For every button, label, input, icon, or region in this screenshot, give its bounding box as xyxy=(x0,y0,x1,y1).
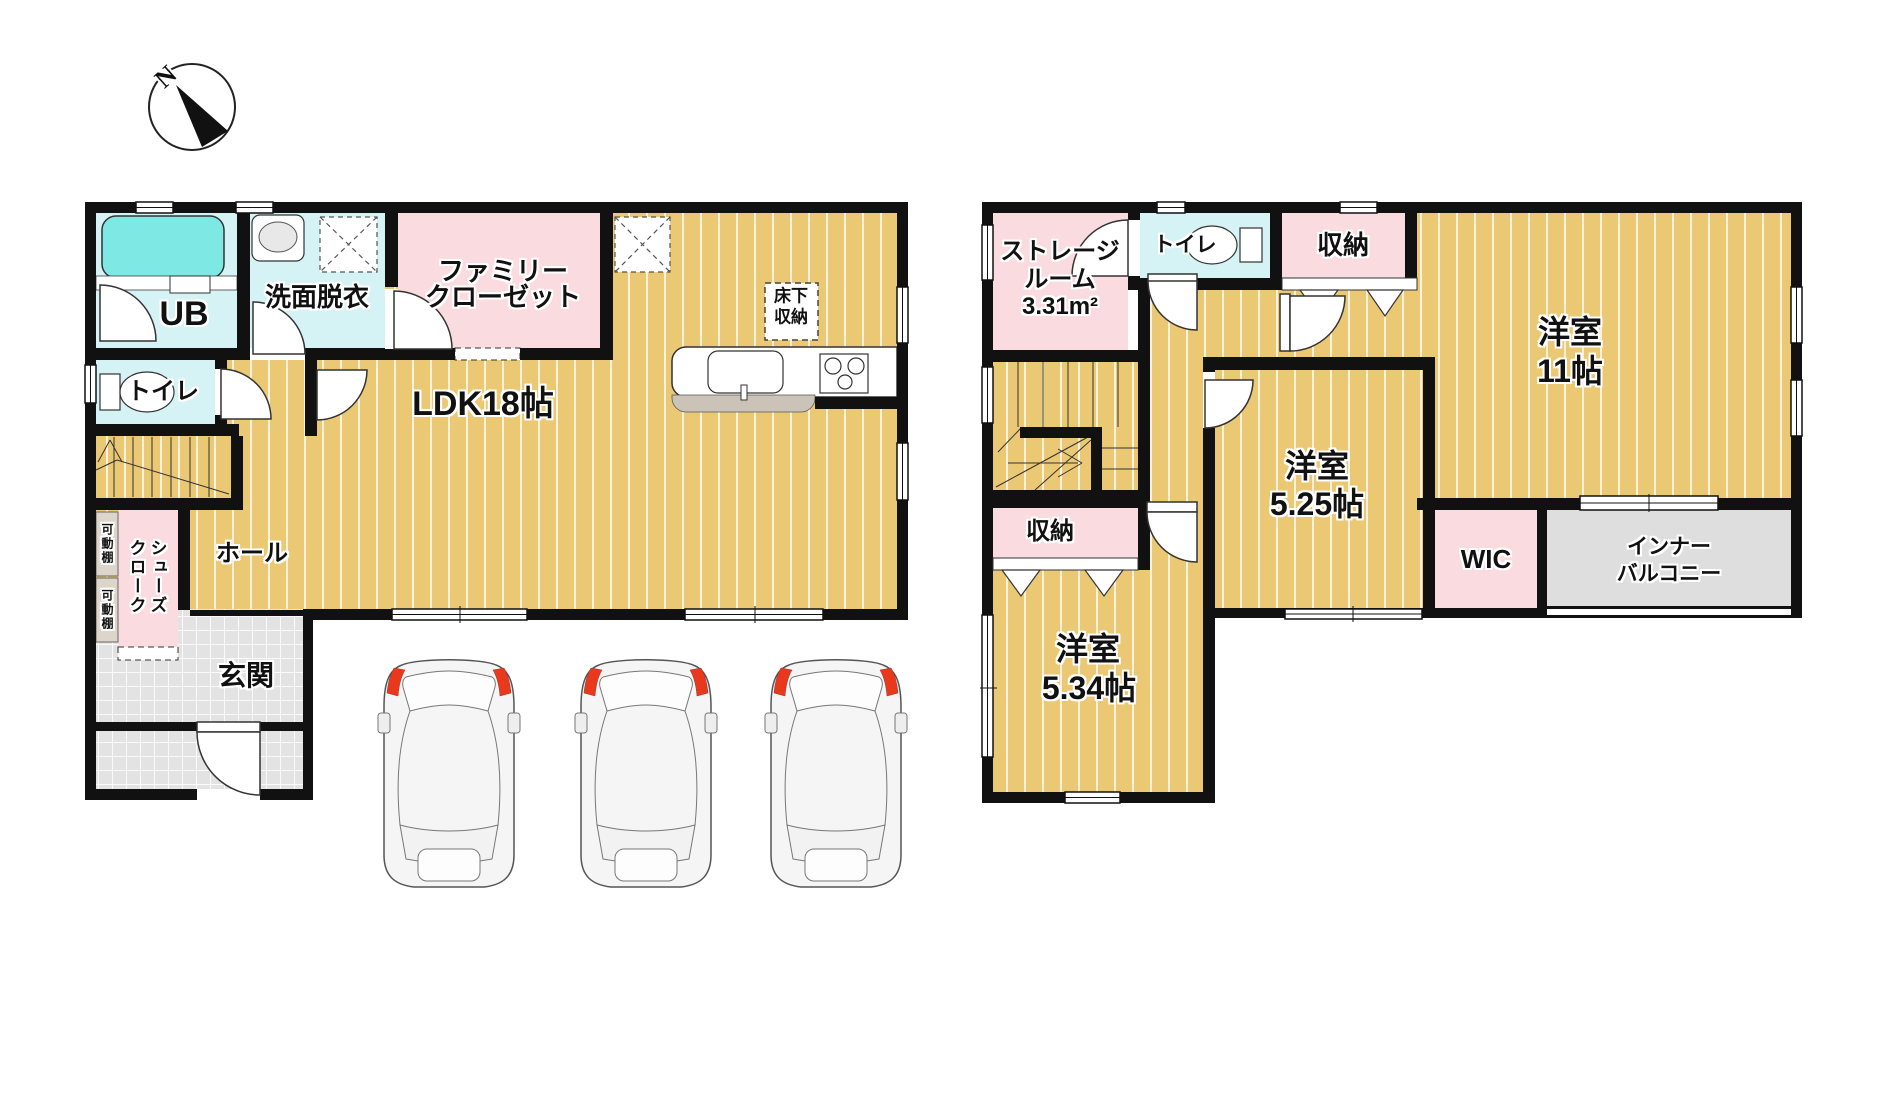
label-toilet-1f: トイレ xyxy=(127,380,199,404)
label-room11-line1: 洋室 xyxy=(1538,316,1602,348)
label-room534-line1: 洋室 xyxy=(1056,633,1120,665)
label-toilet-2f: トイレ xyxy=(1154,235,1217,256)
label-room534-line2: 5.34帖 xyxy=(1042,672,1136,704)
car-3 xyxy=(765,660,907,887)
car-2 xyxy=(575,660,717,887)
label-storage-line2: ルーム xyxy=(1024,268,1095,292)
label-underfloor-line1: 床下 xyxy=(774,288,808,305)
label-entrance: 玄関 xyxy=(218,662,274,690)
label-closet-top: 収納 xyxy=(1317,232,1369,258)
label-ub: UB xyxy=(159,297,208,331)
hatch-square-icon xyxy=(615,217,670,272)
label-shoes-cloak-line1: シューズ xyxy=(149,539,166,615)
washer-pan-icon xyxy=(320,217,377,272)
label-movable-shelf-2: 可動棚 xyxy=(101,589,113,631)
label-movable-shelf-1: 可動棚 xyxy=(101,523,113,565)
label-room525-line1: 洋室 xyxy=(1285,450,1349,482)
label-shoes-cloak-line2: クローク xyxy=(128,539,145,615)
label-wic: WIC xyxy=(1461,546,1512,572)
bathtub-icon xyxy=(102,216,224,278)
label-hall: ホール xyxy=(216,542,288,566)
label-ldk: LDK18帖 xyxy=(412,387,554,421)
label-washroom: 洗面脱衣 xyxy=(265,284,369,310)
label-storage-line1: ストレージ xyxy=(1000,240,1120,264)
label-underfloor-line2: 収納 xyxy=(774,309,808,326)
label-room525-line2: 5.25帖 xyxy=(1270,488,1364,520)
label-family-closet-line2: クローゼット xyxy=(425,284,581,310)
label-family-closet-line1: ファミリー xyxy=(438,258,568,284)
label-inner-balcony-line1: インナー xyxy=(1627,537,1711,558)
entrance-door-leaf xyxy=(197,722,260,732)
room534-door-leaf xyxy=(1147,502,1197,512)
label-room11-line2: 11帖 xyxy=(1537,355,1603,387)
label-inner-balcony-line2: バルコニー xyxy=(1617,564,1722,585)
label-storage-line3: 3.31m² xyxy=(1022,295,1098,319)
car-1 xyxy=(378,660,520,887)
floor-plan-page: N UB 洗面脱衣 ファミリー クローゼット トイレ LDK18帖 床下 収納 … xyxy=(0,0,1888,1113)
label-closet-lower: 収納 xyxy=(1026,520,1074,544)
corridor-door-leaf xyxy=(1280,294,1290,351)
parking-cars xyxy=(378,660,907,887)
